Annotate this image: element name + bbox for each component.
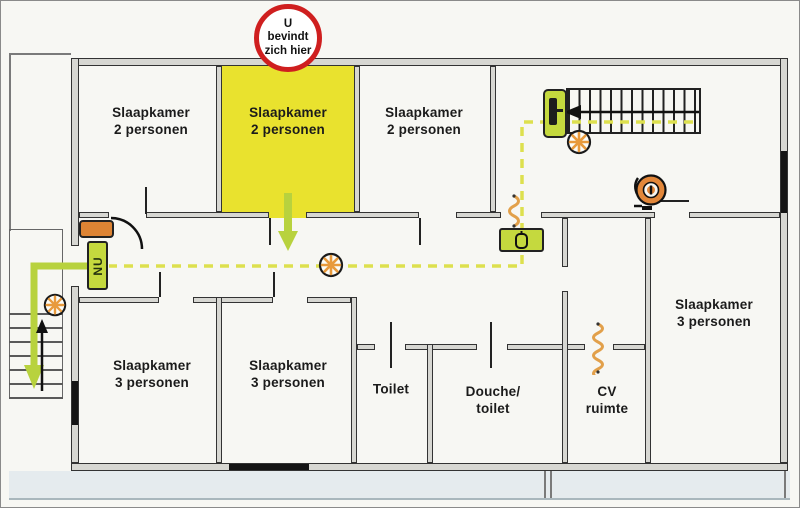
room-label-bedroom-right: Slaapkamer 3 personen — [675, 296, 753, 330]
wall-segment — [354, 66, 360, 212]
self-closing-door-icon — [506, 193, 522, 229]
wall-segment — [689, 212, 780, 218]
fire-hose-reel-icon — [630, 172, 670, 214]
emergency-light-icon — [565, 128, 593, 156]
room-label-toilet: Toilet — [373, 381, 409, 398]
window-bar — [229, 464, 309, 470]
fire-extinguisher-icon — [79, 220, 114, 238]
escape-arrow-down-icon — [277, 191, 299, 255]
wall-segment — [307, 297, 351, 303]
exterior-line — [9, 53, 11, 231]
door-leaf — [390, 322, 392, 368]
wall-segment — [613, 344, 645, 350]
wall-segment — [216, 297, 222, 463]
you-are-here-line: bevindt — [268, 31, 309, 45]
you-are-here-line: zich hier — [265, 45, 312, 59]
room-label-bedroom-top-center: Slaapkamer 2 personen — [249, 104, 327, 138]
room-label-bedroom-bottom-center: Slaapkamer 3 personen — [249, 357, 327, 391]
exterior-line — [9, 53, 71, 55]
exit-door-icon — [543, 89, 567, 138]
wall-segment — [146, 212, 269, 218]
evacuation-floor-plan: NU Slaapkamer 2 personen Slaapkamer 2 pe… — [0, 0, 800, 508]
wall-segment — [71, 58, 79, 246]
room-label-bedroom-bottom-left: Slaapkamer 3 personen — [113, 357, 191, 391]
wall-segment — [562, 218, 568, 267]
emergency-exit-sign: NU — [87, 241, 108, 290]
emergency-light-icon — [42, 292, 68, 318]
wall-segment — [780, 58, 788, 463]
door-leaf — [419, 218, 421, 245]
door-leaf — [273, 272, 275, 297]
ground-divider — [544, 471, 546, 498]
ground-divider — [784, 471, 786, 498]
wall-segment — [306, 212, 419, 218]
wall-segment — [193, 297, 273, 303]
wall-segment — [71, 58, 788, 66]
ground-strip — [9, 471, 790, 500]
stairs-direction-arrow-icon — [559, 101, 701, 123]
wall-segment — [507, 344, 585, 350]
room-label-shower-toilet: Douche/ toilet — [466, 383, 521, 417]
wall-segment — [351, 297, 357, 463]
emergency-exit-sign-label: NU — [91, 251, 105, 281]
equipment-cabinet-icon — [499, 228, 544, 252]
wall-segment — [357, 344, 375, 350]
wall-segment — [562, 291, 568, 463]
room-label-bedroom-top-right: Slaapkamer 2 personen — [385, 104, 463, 138]
wall-segment — [216, 66, 222, 212]
door-leaf — [269, 218, 271, 245]
wall-segment — [71, 463, 788, 471]
door-leaf — [145, 187, 147, 214]
stairs-up-arrow-icon — [33, 315, 51, 395]
wall-segment — [456, 212, 501, 218]
wall-segment — [645, 218, 651, 463]
door-leaf — [159, 272, 161, 297]
room-label-cv-room: CV ruimte — [586, 383, 628, 417]
you-are-here-badge: U bevindt zich hier — [254, 4, 322, 72]
wall-segment — [490, 66, 496, 212]
emergency-light-icon — [317, 251, 345, 279]
room-label-bedroom-top-left: Slaapkamer 2 personen — [112, 104, 190, 138]
wall-segment — [405, 344, 477, 350]
ground-divider — [550, 471, 552, 498]
door-leaf — [490, 322, 492, 368]
you-are-here-line: U — [284, 18, 292, 32]
wall-segment — [427, 344, 433, 463]
window-bar — [781, 151, 787, 213]
self-closing-door-icon — [590, 321, 606, 375]
